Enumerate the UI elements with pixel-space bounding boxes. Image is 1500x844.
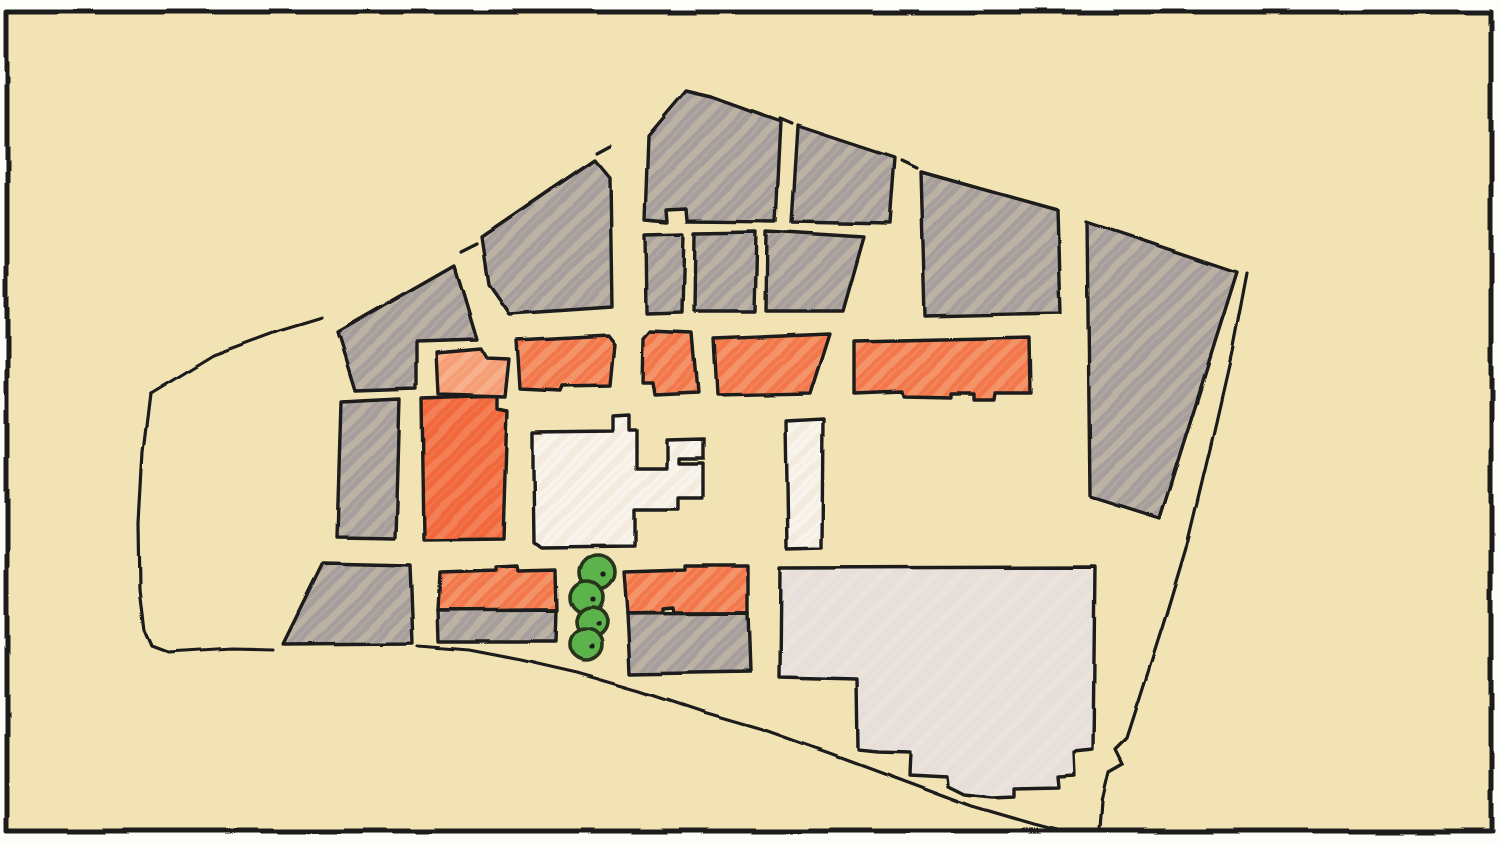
tree-trunk-dot-2 (590, 596, 595, 601)
orange-block-south-b (624, 566, 748, 613)
gray-block-row2-a (645, 233, 684, 314)
orange-tower-mid-west (422, 396, 507, 540)
site-plan-sketch-canvas (0, 0, 1500, 844)
gray-base-south-a (437, 610, 557, 642)
tree-trunk-dot-4 (589, 644, 594, 649)
tree-trunk-dot-1 (600, 571, 605, 576)
orange-block-row1-5 (854, 337, 1030, 400)
gray-base-south-b (627, 612, 750, 674)
gray-strip-mid-west (337, 398, 400, 537)
tree-4 (570, 629, 602, 661)
orange-block-south-a (437, 566, 558, 611)
white-building-bar (786, 419, 823, 548)
drawing-layer (7, 12, 1491, 831)
sketch-stage (0, 0, 1500, 844)
orange-block-row1-4 (713, 334, 829, 396)
orange-block-row1-2 (517, 335, 615, 391)
gray-block-row2-b (694, 231, 757, 312)
tree-trunk-dot-3 (595, 621, 600, 626)
